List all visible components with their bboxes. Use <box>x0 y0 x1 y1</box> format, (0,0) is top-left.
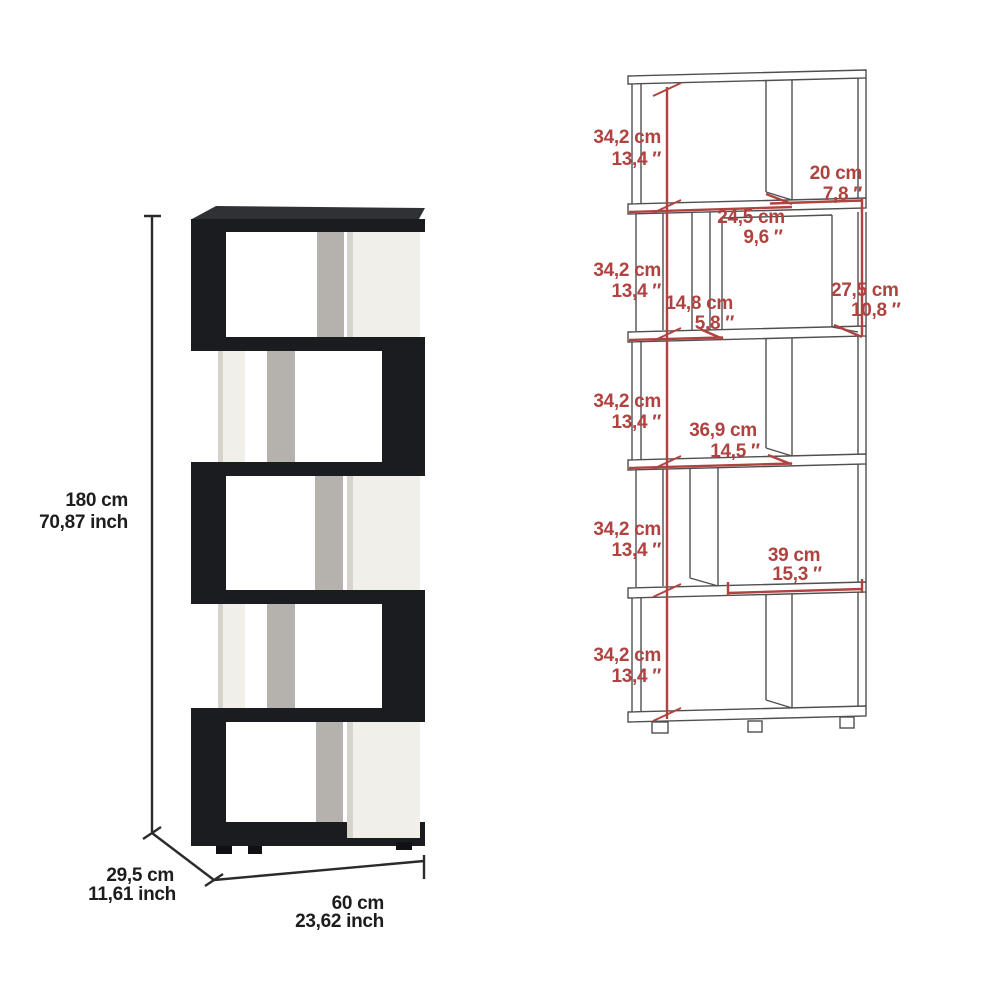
tier1-gray-partition <box>317 232 344 337</box>
shelf-slab-4 <box>191 708 425 722</box>
middle-opening-label-inch: 14,5 ″ <box>710 441 760 462</box>
cube-height-label-cm: 27,5 cm <box>831 280 899 301</box>
foot <box>248 846 262 854</box>
top-slab <box>192 219 425 232</box>
tier3-height-label-inch: 13,4 ″ <box>611 412 661 433</box>
drawing-base-slab <box>628 706 866 722</box>
tier4-white-partition-edge <box>218 604 223 708</box>
depth-label-cm: 29,5 cm <box>106 865 174 886</box>
tier5-height-label-inch: 13,4 ″ <box>611 666 661 687</box>
tier5-partition-lines <box>766 594 792 708</box>
bookcase-3d-render <box>191 206 425 854</box>
tier1-white-panel <box>347 224 420 337</box>
tier4-gray-partition <box>267 604 295 708</box>
tier3-white-panel-edge <box>347 470 353 590</box>
top-opening-label-inch: 7,8 ″ <box>823 184 862 205</box>
tier4-right-panel-lines <box>858 464 866 582</box>
tier3-partition-lines <box>766 338 792 456</box>
tier4-black-right-panel <box>382 590 425 722</box>
width-label-inch: 23,62 inch <box>295 911 384 932</box>
tier2-white-partition-edge <box>218 351 223 462</box>
tier1-height-label-inch: 13,4 ″ <box>611 149 661 170</box>
drawing-top-slab <box>628 70 866 84</box>
drawing-foot <box>840 717 854 728</box>
drawing-foot <box>748 721 762 732</box>
top-face <box>192 206 425 219</box>
tier5-white-panel <box>347 722 420 838</box>
tier5-right-panel-lines <box>858 592 866 706</box>
tier3-white-panel <box>347 470 420 590</box>
middle-opening-label-cm: 36,9 cm <box>689 420 757 441</box>
height-label-cm: 180 cm <box>65 490 128 511</box>
tier1-white-panel-edge <box>347 224 353 337</box>
cube-width-label-inch: 9,6 ″ <box>743 227 782 248</box>
shelf-slab-3 <box>191 590 425 604</box>
width-dimension-line <box>214 861 424 880</box>
cube-height-label-inch: 10,8 ″ <box>851 300 901 321</box>
tier3-black-left-panel <box>191 476 226 590</box>
tier3-height-label-cm: 34,2 cm <box>593 391 661 412</box>
tier1-height-label-cm: 34,2 cm <box>593 127 661 148</box>
diagram-svg: 180 cm 70,87 inch 29,5 cm 11,61 inch 60 … <box>0 0 1000 1000</box>
tier5-black-left-panel <box>191 722 226 822</box>
tier2-gray-partition <box>267 351 295 462</box>
drawing-foot <box>652 722 668 733</box>
bookcase-dimension-diagram: 180 cm 70,87 inch 29,5 cm 11,61 inch 60 … <box>0 0 1000 1000</box>
tier5-gray-partition <box>316 722 343 822</box>
tier3-gray-partition <box>315 476 343 590</box>
lower-opening-label-inch: 15,3 ″ <box>772 564 822 585</box>
tier4-partition-lines <box>690 468 718 586</box>
tier1-partition-lines <box>766 80 792 200</box>
depth-label-inch: 11,61 inch <box>88 884 176 905</box>
tier5-white-panel-edge <box>347 722 353 838</box>
tier1-black-left-panel <box>191 219 226 337</box>
gray-partitions <box>267 232 344 822</box>
tier4-height-label-cm: 34,2 cm <box>593 519 661 540</box>
height-label-inch: 70,87 inch <box>39 512 128 533</box>
tier5-height-label-cm: 34,2 cm <box>593 645 661 666</box>
tier2-black-right-panel <box>382 337 425 476</box>
foot <box>396 842 412 850</box>
shelf-slab-1 <box>191 337 425 351</box>
tier3-right-panel-lines <box>858 336 866 454</box>
side-gap-label-inch: 5,8 ″ <box>695 313 734 334</box>
tier2-height-label-cm: 34,2 cm <box>593 260 661 281</box>
foot <box>216 846 232 854</box>
shelf-slab-2 <box>191 462 425 476</box>
lower-opening-label-cm: 39 cm <box>768 545 820 566</box>
side-gap-label-cm: 14,8 cm <box>665 293 733 314</box>
tier4-height-label-inch: 13,4 ″ <box>611 540 661 561</box>
cube-width-label-cm: 24,5 cm <box>717 207 785 228</box>
tier2-height-label-inch: 13,4 ″ <box>611 281 661 302</box>
top-opening-label-cm: 20 cm <box>810 163 862 184</box>
